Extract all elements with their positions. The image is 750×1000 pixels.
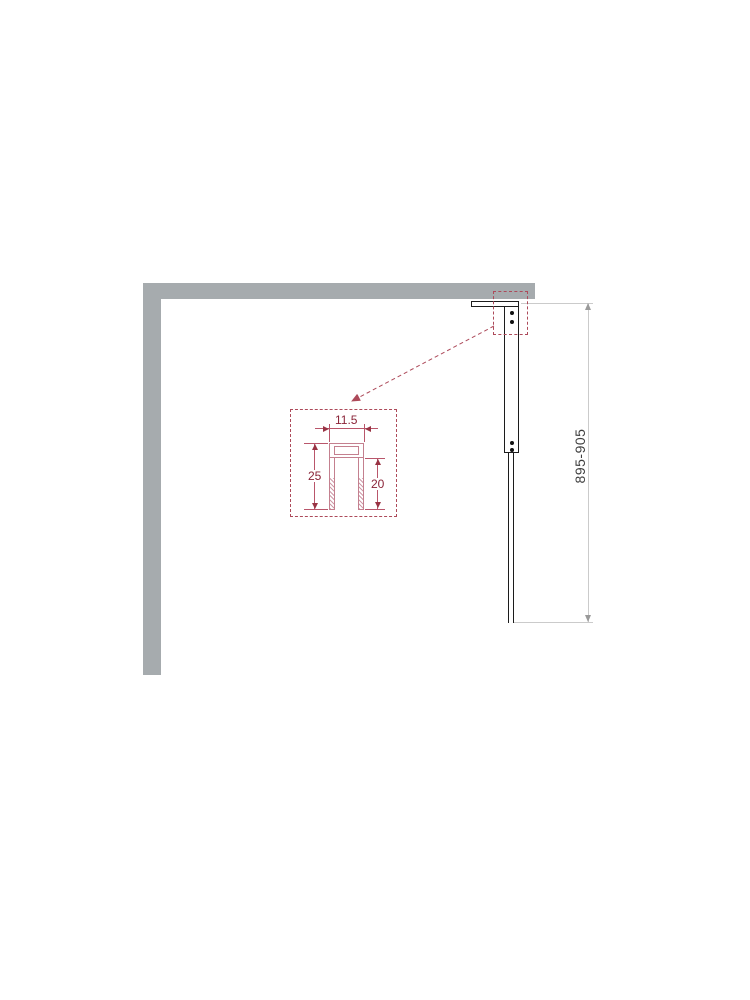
profile-leg-right-grip <box>359 478 363 509</box>
arrow-up-icon <box>312 444 318 450</box>
arrow-right-icon <box>323 426 329 432</box>
outer-depth-extension-line-bottom <box>304 509 328 510</box>
profile-leg-left-grip <box>330 478 334 509</box>
diagram-canvas: 895-905 11.5 25 20 <box>0 0 750 1000</box>
arrow-down-icon <box>375 502 381 508</box>
profile-top-chamber-inner <box>334 446 359 455</box>
arrow-down-icon <box>585 615 591 622</box>
arrow-down-icon <box>312 503 318 509</box>
outer-depth-dimension-label: 25 <box>306 470 323 482</box>
arrow-left-icon <box>365 426 371 432</box>
inner-depth-extension-line-bottom <box>365 509 385 510</box>
arrow-up-icon <box>585 303 591 310</box>
height-extension-line-bottom <box>514 622 593 623</box>
screw-hole <box>510 448 514 452</box>
height-dimension-label: 895-905 <box>573 426 587 486</box>
width-dimension-label: 11.5 <box>333 414 359 426</box>
height-dimension-line <box>588 303 589 622</box>
height-extension-line-top <box>521 303 593 304</box>
screw-hole <box>510 441 514 445</box>
width-extension-line-left <box>329 424 330 442</box>
arrow-up-icon <box>375 459 381 465</box>
wall-left <box>143 283 161 675</box>
wall-top <box>143 283 535 299</box>
glass-panel <box>508 450 514 623</box>
inner-depth-dimension-label: 20 <box>369 478 386 490</box>
callout-source-box <box>493 291 528 335</box>
